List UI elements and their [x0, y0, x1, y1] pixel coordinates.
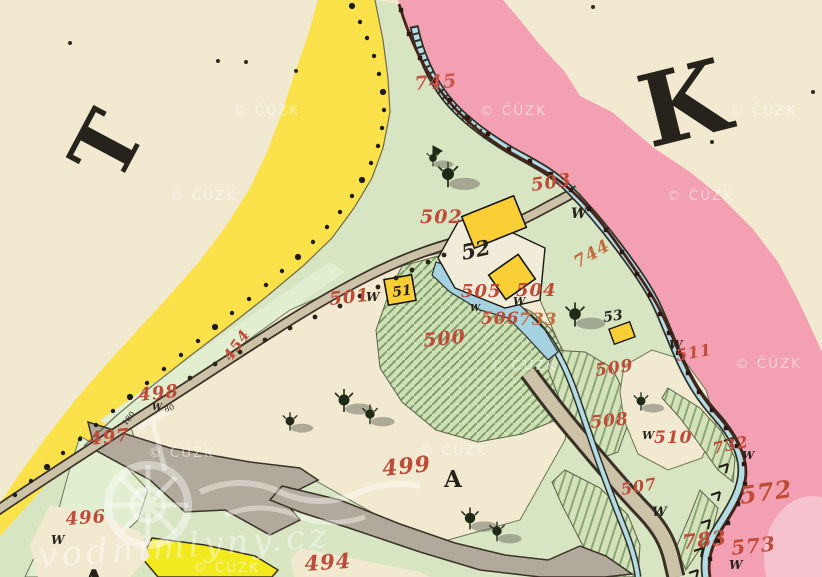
border-marker — [742, 462, 746, 466]
paper-speck — [294, 69, 298, 73]
cuzk-watermark-text: © ČÚZK — [420, 441, 487, 459]
border-marker — [418, 56, 422, 60]
meadow-w-mark: W — [669, 338, 684, 352]
parcel-number-label: 783 — [681, 525, 728, 554]
boundary-dot — [127, 394, 133, 400]
boundary-dot — [78, 437, 82, 441]
paper-speck — [216, 59, 220, 63]
road-tree-dot — [263, 338, 268, 343]
road-tree-dot — [313, 315, 318, 320]
road-tree-dot — [410, 268, 415, 273]
border-marker — [697, 390, 701, 394]
meadow-w-mark: W — [642, 429, 656, 442]
boundary-dot — [365, 36, 369, 40]
cadastral-map: 7455035027445055045015067335005115094544… — [0, 0, 822, 577]
boundary-dot — [94, 423, 98, 427]
boundary-dot — [44, 464, 50, 470]
road-tree-dot — [188, 376, 193, 381]
boundary-dot — [380, 126, 384, 130]
boundary-dot — [350, 194, 354, 198]
boundary-dot — [280, 269, 284, 273]
paper-speck — [811, 90, 815, 94]
cuzk-watermark-text: © ČÚZK — [170, 186, 237, 204]
territory-letter: A — [443, 466, 463, 493]
border-marker — [667, 331, 671, 335]
boundary-dot — [376, 144, 380, 148]
boundary-dot — [61, 451, 65, 455]
cuzk-watermark-text: © ČÚZK — [490, 356, 557, 374]
border-marker — [528, 159, 532, 163]
road-tree-dot — [394, 276, 399, 281]
border-marker — [648, 293, 652, 297]
boundary-dot — [380, 89, 386, 95]
border-marker — [507, 147, 511, 151]
border-marker — [466, 116, 470, 120]
border-marker — [736, 502, 740, 506]
boundary-dot — [179, 353, 183, 357]
meadow-w-mark: W — [366, 290, 381, 304]
border-marker — [587, 207, 591, 211]
road-tree-dot — [376, 285, 381, 290]
cuzk-watermark-text: © ČÚZK — [233, 101, 300, 119]
border-marker — [658, 312, 662, 316]
parcel-number-label: 573 — [730, 531, 777, 560]
cuzk-watermark-text: © ČÚZK — [730, 101, 797, 119]
meadow-w-mark: W — [742, 449, 756, 462]
boundary-dot — [295, 254, 301, 260]
boundary-dot — [212, 324, 218, 330]
parcel-number-label: 506 — [481, 309, 520, 329]
boundary-dot — [338, 210, 342, 214]
boundary-dot — [247, 297, 251, 301]
road-tree-dot — [288, 326, 293, 331]
boundary-dot — [264, 283, 268, 287]
cuzk-watermark-text: © ČÚZK — [667, 186, 734, 204]
meadow-w-mark: W — [152, 403, 163, 413]
parcel-number-label: 510 — [654, 428, 693, 448]
road-tree-dot — [426, 260, 431, 265]
parcel-number-label: 500 — [422, 326, 467, 352]
building-number-label: 53 — [602, 307, 624, 326]
parcel-number-label: 505 — [461, 281, 502, 302]
meadow-w-mark: W — [470, 304, 481, 314]
building-number-label: 51 — [391, 282, 413, 301]
boundary-dot — [349, 3, 355, 9]
cuzk-watermark-text: © ČÚZK — [193, 558, 260, 576]
boundary-dot — [359, 177, 365, 183]
border-marker — [604, 228, 608, 232]
boundary-dot — [13, 493, 17, 497]
boundary-dot — [325, 225, 329, 229]
boundary-dot — [230, 311, 234, 315]
cuzk-watermark-text: © ČÚZK — [735, 354, 802, 372]
cuzk-watermark-text: © ČÚZK — [480, 101, 547, 119]
parcel-number-label: 745 — [414, 70, 458, 95]
boundary-dot — [162, 367, 166, 371]
boundary-dot — [111, 409, 115, 413]
parcel-number-label: 501 — [328, 285, 371, 310]
border-marker — [710, 408, 714, 412]
boundary-dot — [29, 479, 33, 483]
meadow-w-mark: W — [513, 295, 527, 308]
cadastral-map-viewport[interactable]: 7455035027445055045015067335005115094544… — [0, 0, 822, 577]
paper-speck — [68, 41, 72, 45]
boundary-dot — [377, 72, 381, 76]
parcel-number-label: 508 — [589, 409, 629, 433]
road-tree-dot — [442, 253, 447, 258]
parcel-number-label: 496 — [65, 506, 107, 530]
border-marker — [686, 371, 690, 375]
boundary-dot — [358, 20, 362, 24]
parcel-number-label: 502 — [420, 206, 463, 228]
cuzk-watermark-text: © ČÚZK — [148, 443, 215, 461]
meadow-w-mark: W — [571, 206, 588, 222]
boundary-dot — [382, 108, 386, 112]
border-marker — [620, 250, 624, 254]
road-tree-dot — [213, 362, 218, 367]
boundary-dot — [311, 240, 315, 244]
paper-speck — [244, 60, 248, 64]
border-marker — [407, 32, 411, 36]
meadow-w-mark: W — [652, 505, 668, 520]
border-marker — [399, 8, 403, 12]
parcel-number-label: 733 — [519, 310, 558, 330]
paper-speck — [591, 5, 595, 9]
boundary-dot — [372, 54, 376, 58]
parcel-number-label: 497 — [88, 425, 131, 450]
border-marker — [635, 272, 639, 276]
border-marker — [724, 426, 728, 430]
border-marker — [448, 98, 452, 102]
boundary-dot — [369, 161, 373, 165]
boundary-dot — [196, 339, 200, 343]
meadow-w-mark: W — [729, 558, 744, 572]
border-marker — [726, 521, 730, 525]
border-marker — [708, 557, 712, 561]
border-marker — [486, 132, 490, 136]
